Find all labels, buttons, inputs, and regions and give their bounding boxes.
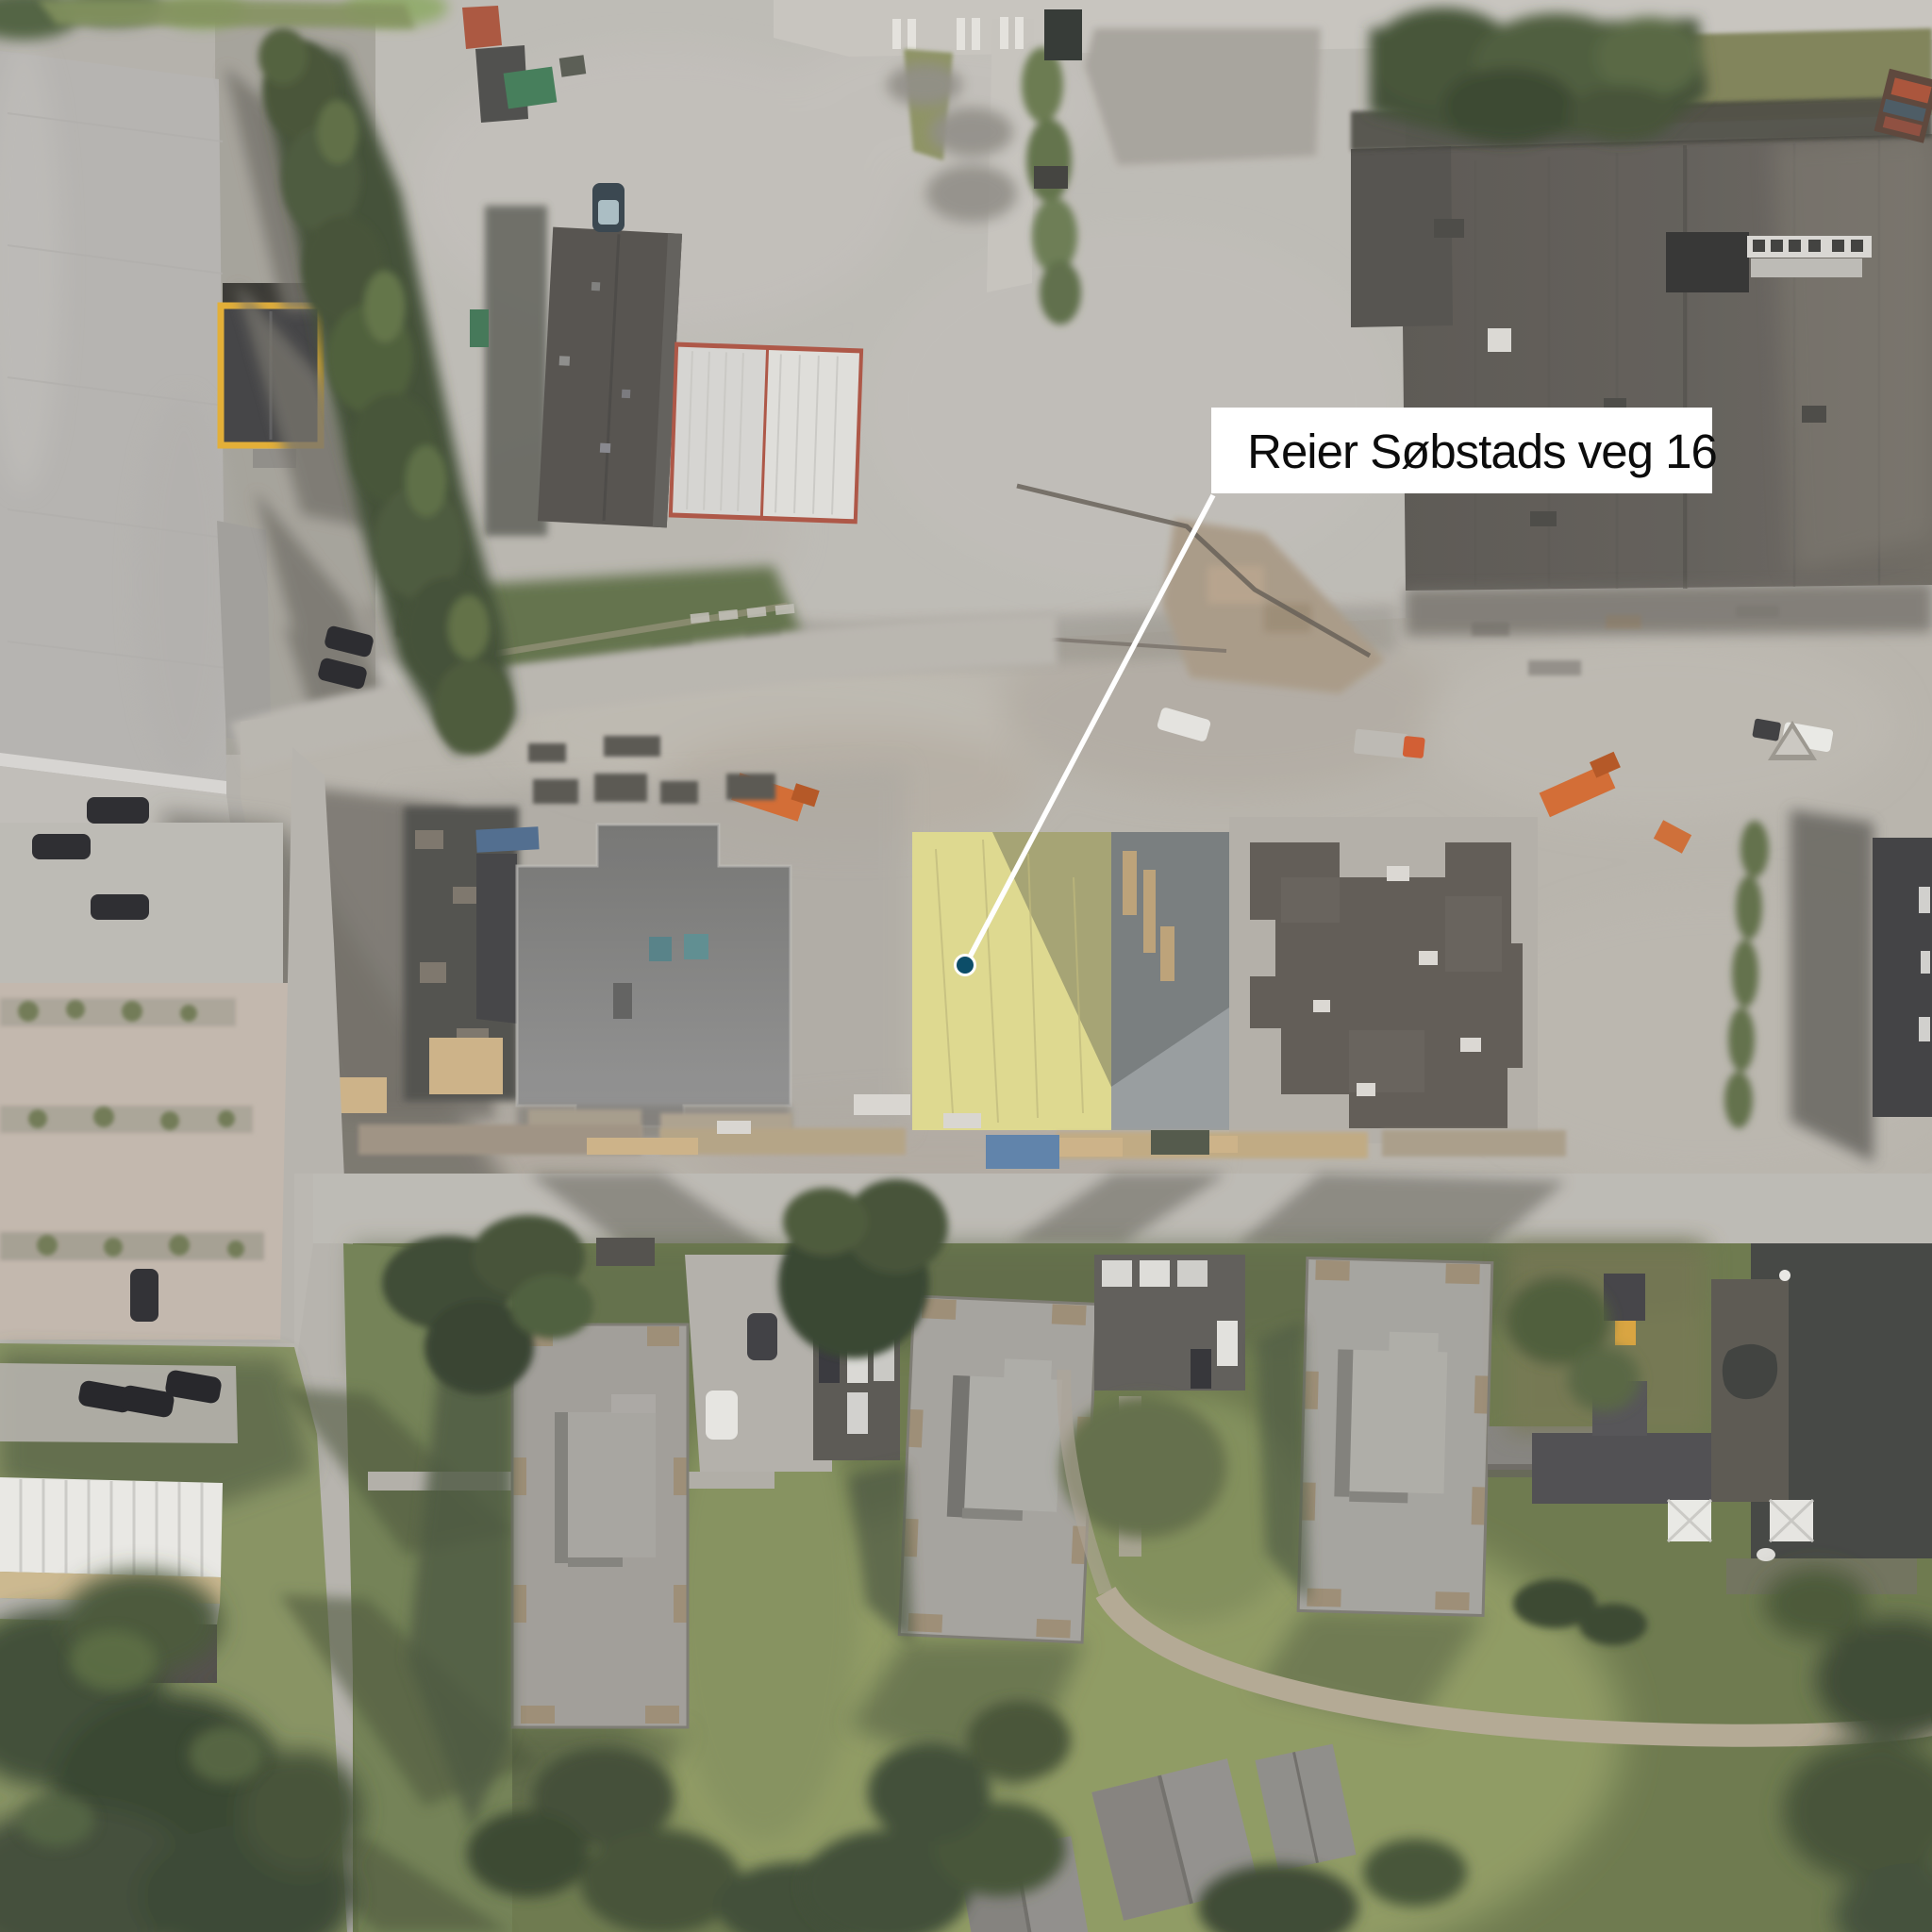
svg-text:Reier Søbstads veg 16: Reier Søbstads veg 16 bbox=[1247, 425, 1717, 478]
